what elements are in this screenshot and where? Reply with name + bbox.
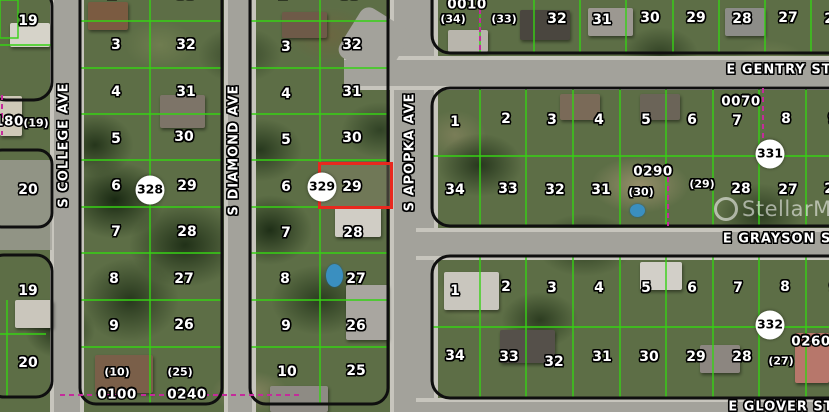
parcel-number: 28 bbox=[731, 182, 750, 196]
parcel-number: 30 bbox=[342, 131, 361, 145]
parcel-number: 27 bbox=[174, 272, 193, 286]
parcel-number: 20 bbox=[18, 356, 37, 370]
parcel-number: 9 bbox=[281, 319, 291, 333]
parcel-number: 3 bbox=[111, 38, 121, 52]
parcel-number: 4 bbox=[281, 87, 291, 101]
parcel-number: 3 bbox=[547, 281, 557, 295]
parcel-number: 2 bbox=[501, 280, 511, 294]
parcel-number: 26 bbox=[824, 182, 829, 196]
watermark-text: StellarMLS bbox=[742, 197, 829, 221]
lot-reference: (27) bbox=[768, 356, 793, 367]
parcel-number: 28 bbox=[343, 226, 362, 240]
watermark-logo-icon bbox=[714, 197, 738, 221]
parcel-number: 2 bbox=[278, 0, 288, 2]
parcel-number: 29 bbox=[686, 350, 705, 364]
parcel-number: 28 bbox=[177, 225, 196, 239]
parcel-number: 32 bbox=[547, 12, 566, 26]
parcel-number: 9 bbox=[109, 319, 119, 333]
block-number: 0290 bbox=[633, 165, 673, 179]
parcel-number: 19 bbox=[18, 14, 37, 28]
parcel-number: 29 bbox=[686, 11, 705, 25]
parcel-number: 20 bbox=[18, 183, 37, 197]
street-label: S DIAMOND AVE bbox=[228, 85, 241, 216]
parcel-number: 1 bbox=[450, 284, 460, 298]
parcel-number: 28 bbox=[732, 12, 751, 26]
parcel-number: 6 bbox=[111, 179, 121, 193]
parcel-number: 7 bbox=[733, 281, 743, 295]
street-label: S APOPKA AVE bbox=[404, 93, 417, 212]
lot-reference: (25) bbox=[167, 367, 192, 378]
map-canvas[interactable]: 19201920180(19)233332431530629728827926(… bbox=[0, 0, 829, 412]
parcel-number: 6 bbox=[687, 281, 697, 295]
block-number: 0070 bbox=[721, 95, 761, 109]
parcel-number: 5 bbox=[641, 281, 651, 295]
parcel-number: 7 bbox=[111, 225, 121, 239]
street-label: E GLOVER ST bbox=[728, 401, 829, 412]
parcel-number: 26 bbox=[346, 319, 365, 333]
lot-reference: (34) bbox=[440, 14, 465, 25]
parcel-number: 32 bbox=[176, 38, 195, 52]
parcel-number: 32 bbox=[545, 183, 564, 197]
block-number: 0260 bbox=[791, 335, 829, 349]
parcel-number: 31 bbox=[176, 85, 195, 99]
lot-reference: (29) bbox=[689, 179, 714, 190]
parcel-number: 8 bbox=[780, 280, 790, 294]
parcel-number: 5 bbox=[111, 132, 121, 146]
street-label: E GENTRY ST bbox=[726, 64, 829, 77]
parcel-number: 2 bbox=[501, 112, 511, 126]
parcel-number: 19 bbox=[18, 284, 37, 298]
parcel-number: 4 bbox=[594, 281, 604, 295]
parcel-number: 5 bbox=[281, 133, 291, 147]
parcel-number: 8 bbox=[109, 272, 119, 286]
parcel-number: 4 bbox=[111, 85, 121, 99]
parcel-number: 30 bbox=[640, 11, 659, 25]
parcel-number: 34 bbox=[445, 183, 464, 197]
parcel-number: 2 bbox=[107, 0, 117, 2]
parcel-number: 33 bbox=[176, 0, 195, 2]
parcel-number: 25 bbox=[346, 364, 365, 378]
parcel-number: 31 bbox=[342, 85, 361, 99]
block-circle-marker: 331 bbox=[756, 140, 785, 169]
parcel-number: 7 bbox=[281, 226, 291, 240]
parcel-labels: 19201920180(19)233332431530629728827926(… bbox=[0, 0, 829, 412]
parcel-number: 32 bbox=[342, 38, 361, 52]
parcel-number: 28 bbox=[732, 350, 751, 364]
watermark: StellarMLS bbox=[714, 197, 829, 221]
block-number: 0010 bbox=[447, 0, 487, 12]
parcel-number: 30 bbox=[174, 130, 193, 144]
parcel-number: 6 bbox=[687, 113, 697, 127]
lot-reference: (33) bbox=[491, 14, 516, 25]
parcel-number: 1 bbox=[450, 115, 460, 129]
parcel-number: 3 bbox=[281, 40, 291, 54]
block-circle-marker: 332 bbox=[756, 311, 785, 340]
lot-reference: (30) bbox=[628, 187, 653, 198]
street-label: E GRAYSON ST bbox=[723, 233, 829, 246]
block-number: 0100 bbox=[97, 388, 137, 402]
parcel-number: 26 bbox=[174, 318, 193, 332]
parcel-number: 6 bbox=[281, 180, 291, 194]
lot-reference: (19) bbox=[23, 118, 48, 129]
parcel-number: 4 bbox=[594, 113, 604, 127]
parcel-number: 34 bbox=[445, 349, 464, 363]
parcel-number: 33 bbox=[499, 350, 518, 364]
parcel-number: 31 bbox=[592, 13, 611, 27]
parcel-number: 5 bbox=[641, 113, 651, 127]
parcel-number: 3 bbox=[547, 113, 557, 127]
parcel-number: 30 bbox=[639, 350, 658, 364]
parcel-number: 8 bbox=[280, 272, 290, 286]
parcel-number: 32 bbox=[544, 355, 563, 369]
parcel-number: 8 bbox=[781, 112, 791, 126]
parcel-number: 29 bbox=[177, 179, 196, 193]
block-circle-marker: 329 bbox=[308, 173, 337, 202]
block-circle-marker: 328 bbox=[136, 176, 165, 205]
parcel-number: 7 bbox=[732, 114, 742, 128]
parcel-number: 33 bbox=[340, 0, 359, 2]
parcel-number: 33 bbox=[498, 182, 517, 196]
parcel-number: 27 bbox=[346, 272, 365, 286]
parcel-number: 27 bbox=[778, 11, 797, 25]
street-label: S COLLEGE AVE bbox=[58, 82, 71, 207]
parcel-number: 31 bbox=[592, 350, 611, 364]
parcel-number: 31 bbox=[591, 183, 610, 197]
lot-reference: (10) bbox=[104, 367, 129, 378]
block-number: 0240 bbox=[167, 388, 207, 402]
block-number: 180 bbox=[0, 115, 24, 129]
parcel-number: 10 bbox=[277, 365, 296, 379]
parcel-number: 26 bbox=[824, 12, 829, 26]
parcel-number: 27 bbox=[778, 183, 797, 197]
parcel-number: 29 bbox=[342, 180, 361, 194]
